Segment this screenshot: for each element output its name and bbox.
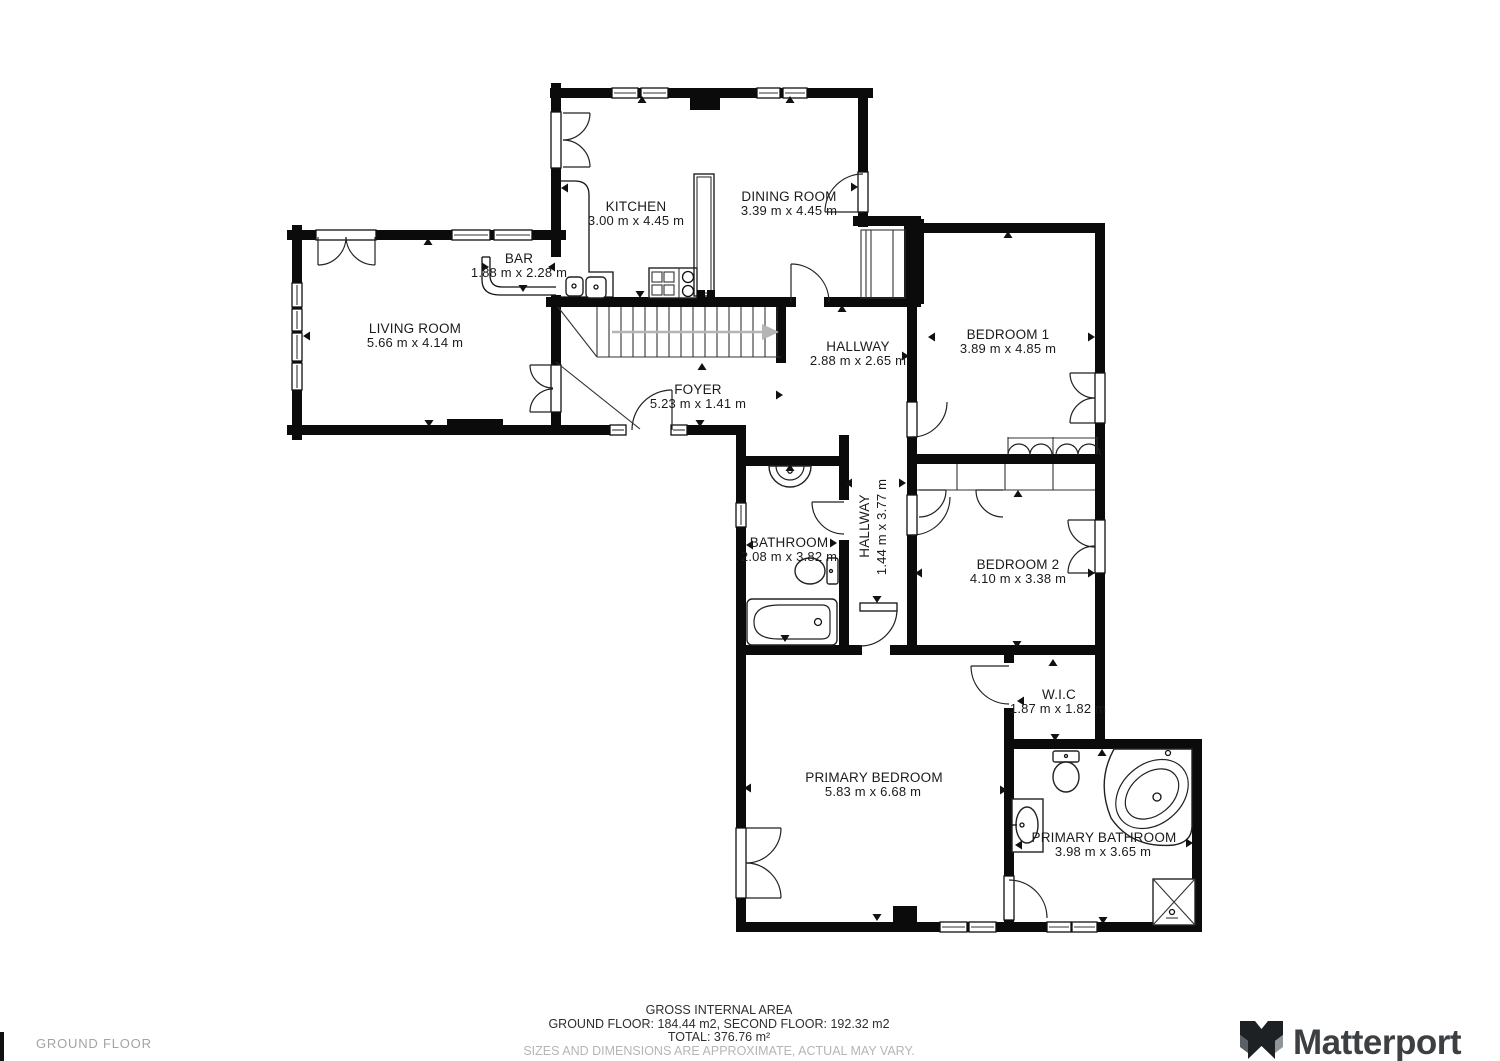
svg-text:BEDROOM 2: BEDROOM 2 <box>977 557 1060 572</box>
svg-text:3.39 m x 4.45 m: 3.39 m x 4.45 m <box>741 203 837 218</box>
svg-text:1.87 m x 1.82 m: 1.87 m x 1.82 m <box>1010 701 1106 716</box>
window <box>612 88 638 98</box>
svg-text:5.83 m x 6.68 m: 5.83 m x 6.68 m <box>825 784 921 799</box>
door-kitchen-french <box>551 112 590 168</box>
svg-text:W.I.C: W.I.C <box>1042 687 1076 702</box>
window-sidelight <box>671 425 687 435</box>
window <box>757 88 780 98</box>
room-label-hallway-2: HALLWAY 1.44 m x 3.77 m <box>857 479 889 575</box>
dimension-ticks <box>303 96 1193 924</box>
room-label-bathroom: BATHROOM2.08 m x 3.82 m <box>741 535 837 564</box>
window-sidelight <box>610 425 626 435</box>
brand-wordmark: Matterport <box>1293 1023 1462 1061</box>
bedroom2-closets <box>917 464 1095 517</box>
window <box>641 88 668 98</box>
svg-text:FOYER: FOYER <box>674 382 722 397</box>
svg-text:PRIMARY BATHROOM: PRIMARY BATHROOM <box>1032 830 1177 845</box>
fireplace-primary <box>893 906 917 922</box>
window <box>736 503 746 527</box>
toilet <box>1053 751 1079 792</box>
area-summary: GROSS INTERNAL AREA GROUND FLOOR: 184.44… <box>523 1004 914 1058</box>
window <box>292 283 302 307</box>
matterport-icon <box>1240 1021 1283 1059</box>
svg-text:BATHROOM: BATHROOM <box>750 535 829 550</box>
room-label-foyer: FOYER5.23 m x 1.41 m <box>650 382 746 411</box>
matterport-logo: Matterport <box>1240 1021 1462 1061</box>
window <box>783 88 807 98</box>
svg-text:3.89 m x 4.85 m: 3.89 m x 4.85 m <box>960 341 1056 356</box>
kitchen-sink <box>566 277 606 298</box>
svg-text:1.44 m x 3.77 m: 1.44 m x 3.77 m <box>874 479 889 575</box>
room-label-primary-bathroom: PRIMARY BATHROOM3.98 m x 3.65 m <box>1032 830 1177 859</box>
door-bedroom1-double <box>1070 373 1105 423</box>
room-label-living-room: LIVING ROOM5.66 m x 4.14 m <box>367 321 463 350</box>
svg-text:BEDROOM 1: BEDROOM 1 <box>967 327 1050 342</box>
bedroom1-closet-bifold <box>1008 437 1100 455</box>
door-living-foyer-double <box>530 365 561 412</box>
svg-text:2.08 m x 3.82 m: 2.08 m x 3.82 m <box>741 549 837 564</box>
area-total: TOTAL: 376.76 m² <box>523 1031 914 1045</box>
area-disclaimer: SIZES AND DIMENSIONS ARE APPROXIMATE, AC… <box>523 1045 914 1059</box>
fireplace-living <box>447 419 503 431</box>
window <box>292 309 302 331</box>
pantry-sliding-doors <box>861 230 905 298</box>
window <box>292 363 302 390</box>
stairs-direction-arrow <box>612 324 779 340</box>
area-title: GROSS INTERNAL AREA <box>523 1004 914 1018</box>
room-label-primary-bedroom: PRIMARY BEDROOM5.83 m x 6.68 m <box>805 770 943 799</box>
room-label-bedroom-1: BEDROOM 13.89 m x 4.85 m <box>960 327 1056 356</box>
area-line: GROUND FLOOR: 184.44 m2, SECOND FLOOR: 1… <box>523 1018 914 1032</box>
kitchen-island <box>694 174 715 300</box>
svg-text:LIVING ROOM: LIVING ROOM <box>369 321 461 336</box>
room-label-hallway: HALLWAY2.88 m x 2.65 m <box>810 339 906 368</box>
closets <box>861 230 1100 517</box>
door-primary-bathroom <box>1004 876 1047 920</box>
svg-text:DINING ROOM: DINING ROOM <box>741 189 836 204</box>
chimney-bump <box>690 96 720 110</box>
window <box>292 333 302 361</box>
svg-text:PRIMARY BEDROOM: PRIMARY BEDROOM <box>805 770 943 785</box>
svg-text:BAR: BAR <box>505 251 533 266</box>
floor-label: GROUND FLOOR <box>36 1036 152 1051</box>
window <box>1072 922 1097 932</box>
window <box>1047 922 1071 932</box>
svg-text:HALLWAY: HALLWAY <box>826 339 889 354</box>
svg-text:HALLWAY: HALLWAY <box>857 494 872 557</box>
stove <box>649 268 697 298</box>
page-corner-mark <box>0 1032 4 1061</box>
svg-text:1.88 m x 2.28 m: 1.88 m x 2.28 m <box>471 265 567 280</box>
window <box>494 230 532 240</box>
room-label-kitchen: KITCHEN3.00 m x 4.45 m <box>588 199 684 228</box>
door-living-french-top <box>316 230 376 265</box>
floorplan-page: KITCHEN3.00 m x 4.45 m DINING ROOM3.39 m… <box>0 0 1500 1061</box>
room-label-wic: W.I.C1.87 m x 1.82 m <box>1010 687 1106 716</box>
bathtub <box>747 599 837 645</box>
door-bedroom1 <box>907 402 947 437</box>
floorplan-svg: KITCHEN3.00 m x 4.45 m DINING ROOM3.39 m… <box>0 0 1500 1061</box>
svg-text:5.66 m x 4.14 m: 5.66 m x 4.14 m <box>367 335 463 350</box>
window <box>452 230 490 240</box>
window <box>969 922 996 932</box>
svg-text:KITCHEN: KITCHEN <box>606 199 667 214</box>
shower <box>1153 879 1195 925</box>
room-label-bedroom-2: BEDROOM 24.10 m x 3.38 m <box>970 557 1066 586</box>
door-dining-hallway <box>791 264 829 302</box>
door-primary-bedroom-double <box>736 828 781 898</box>
room-label-dining-room: DINING ROOM3.39 m x 4.45 m <box>741 189 837 218</box>
svg-text:2.88 m x 2.65 m: 2.88 m x 2.65 m <box>810 353 906 368</box>
svg-text:4.10 m x 3.38 m: 4.10 m x 3.38 m <box>970 571 1066 586</box>
door-bedroom2-double <box>1068 520 1105 573</box>
door-hallway-bottom <box>860 603 897 646</box>
window <box>940 922 967 932</box>
svg-text:3.00 m x 4.45 m: 3.00 m x 4.45 m <box>588 213 684 228</box>
svg-text:5.23 m x 1.41 m: 5.23 m x 1.41 m <box>650 396 746 411</box>
svg-text:3.98 m x 3.65 m: 3.98 m x 3.65 m <box>1055 844 1151 859</box>
